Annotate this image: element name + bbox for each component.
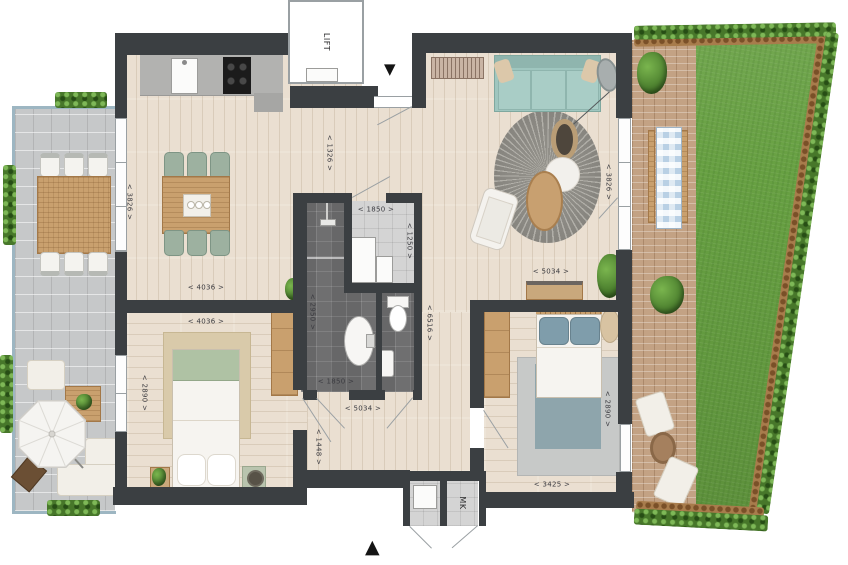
wall-bath-bottom-a [303, 390, 317, 400]
dimension-corridor-depth: < 6516 > [426, 305, 433, 341]
dimension-bathroom-depth: < 2950 > [309, 294, 316, 330]
kitchen-faucet [182, 60, 187, 65]
dimension-entry-width: < 1326 > [326, 135, 333, 171]
storage-closet-door-swing [409, 526, 432, 549]
living-sideboard [526, 281, 583, 300]
wall-alcove-right [479, 471, 486, 526]
meter-cupboard-label: MK [458, 496, 466, 509]
wall-alcove-top [403, 471, 486, 481]
dimension-living-width-b: < 5034 > [533, 269, 569, 276]
wall-bath-left-upper [293, 203, 307, 390]
picnic-table [656, 127, 682, 229]
wall-bath-left-lower [293, 430, 307, 490]
bedroom1-bed [172, 349, 240, 488]
wall-top-left [115, 33, 290, 55]
terrace-chair [88, 153, 108, 177]
sink-faucet [366, 334, 375, 348]
dimension-dining-depth: < 3826 > [126, 184, 133, 220]
dimension-bedroom1-depth: < 2890 > [141, 375, 148, 411]
bedroom2-pouf [600, 309, 620, 343]
bed1-pillow [207, 454, 236, 486]
bed1-fold-line [173, 420, 239, 421]
wall-top-right [420, 33, 632, 53]
sofa-cushion [531, 70, 566, 110]
toilet-bowl [389, 305, 407, 332]
wall-shower-utility-divider [344, 203, 352, 285]
lift-label: LIFT [322, 33, 330, 51]
tray-bowl [195, 201, 203, 209]
terrace-chair [64, 153, 84, 177]
wall-bottom-hall [300, 470, 410, 488]
terrace-lounge-chair [27, 360, 65, 390]
wall-right-upper [616, 53, 632, 118]
wall-alcove-divider [440, 481, 447, 526]
dimension-utility-depth: < 1250 > [406, 223, 413, 259]
bed1-pillow [177, 454, 206, 486]
dimension-bathroom-width: < 1850 > [318, 379, 354, 386]
boiler-unit [413, 485, 437, 509]
terrace-planter-left-upper [3, 165, 16, 245]
terrace-planter-top [55, 92, 107, 108]
wall-bath-top-b [386, 193, 422, 203]
shower-pipe [326, 203, 328, 220]
dimension-bedroom2-width: < 3425 > [534, 482, 570, 489]
wall-wc-right [414, 285, 422, 400]
dimension-living-width-a: < 4036 > [188, 285, 224, 292]
bed2-pillow [539, 317, 569, 345]
picnic-bench-left [648, 130, 655, 223]
wall-living-bedroom2 [470, 300, 632, 312]
kitchen-counter [140, 55, 283, 96]
floor-plan: LIFT ▼ ▲ MK < 1326 > < 3826 > < 4036 > <… [0, 0, 848, 565]
washing-machine [351, 237, 376, 283]
coffee-table [526, 171, 563, 231]
bed2-pillow [570, 317, 600, 345]
wall-utility-right [414, 203, 422, 285]
bedroom2-bed [536, 314, 602, 398]
entry-door [374, 96, 412, 108]
wall-bottom-bedroom1 [113, 487, 307, 505]
wall-right-bedroom2 [618, 312, 632, 424]
terrace-planter-left-lower [0, 355, 13, 433]
dimension-bedroom2-depth: < 2890 > [604, 391, 611, 427]
rattan-chair [551, 119, 578, 160]
tray-bowl [187, 201, 195, 209]
dimension-hall-depth: < 1448 > [315, 429, 322, 465]
wall-bath-top-a [293, 193, 352, 203]
bed2-fold-line [537, 347, 601, 348]
dimension-living-depth: < 3826 > [605, 164, 612, 200]
bedroom2-wardrobe [484, 304, 510, 398]
dryer [376, 256, 393, 283]
sofa [494, 55, 601, 112]
dining-chair [187, 152, 207, 178]
meter-cupboard-door-swing [452, 525, 478, 548]
terrace-chair [64, 252, 84, 276]
wall-utility-bottom [344, 283, 422, 293]
wall-left-lower [115, 432, 127, 490]
kitchen-cooktop [223, 57, 251, 94]
tray-bowl [203, 201, 211, 209]
dining-chair [210, 230, 230, 256]
wall-bath-bottom-c [413, 390, 422, 400]
shower-head [320, 219, 336, 226]
north-arrow-icon: ▲ [365, 538, 380, 557]
bed1-blanket [173, 350, 239, 381]
terrace-chair [40, 252, 60, 276]
entry-recess [362, 0, 412, 96]
dining-chair [210, 152, 230, 178]
bedroom1-window [115, 355, 127, 432]
dining-chair [187, 230, 207, 256]
wall-living-bedroom1 [115, 300, 307, 313]
parasol [15, 396, 89, 474]
dimension-bedroom1-width: < 4036 > [188, 319, 224, 326]
shower-glass [301, 257, 346, 259]
wall-bottom-bedroom2 [482, 492, 634, 508]
picnic-bench-right [681, 130, 688, 223]
dimension-utility-width: < 1850 > [358, 207, 394, 214]
dining-chair [164, 152, 184, 178]
wall-bedroom2-left-upper [470, 312, 484, 408]
wall-bath-bottom-b [349, 390, 385, 400]
bedroom2-garden-door [620, 424, 631, 472]
entry-arrow-icon: ▼ [384, 62, 396, 77]
living-window-garden [618, 118, 631, 250]
wall-below-lift [290, 86, 378, 108]
lift-door [306, 68, 338, 82]
terrace-chair [40, 153, 60, 177]
wall-left-upper [115, 33, 127, 118]
kitchen-counter-return [254, 93, 283, 112]
terrace-planter-bottom [47, 500, 100, 516]
bed1-nightstand-object [247, 470, 264, 487]
dining-chair [164, 230, 184, 256]
terrace-dining-table [37, 176, 111, 254]
wall-bath-wc-divider [376, 293, 382, 392]
entry-shoe-bench [431, 57, 484, 79]
dimension-hall-width: < 5034 > [345, 406, 381, 413]
terrace-chair [88, 252, 108, 276]
